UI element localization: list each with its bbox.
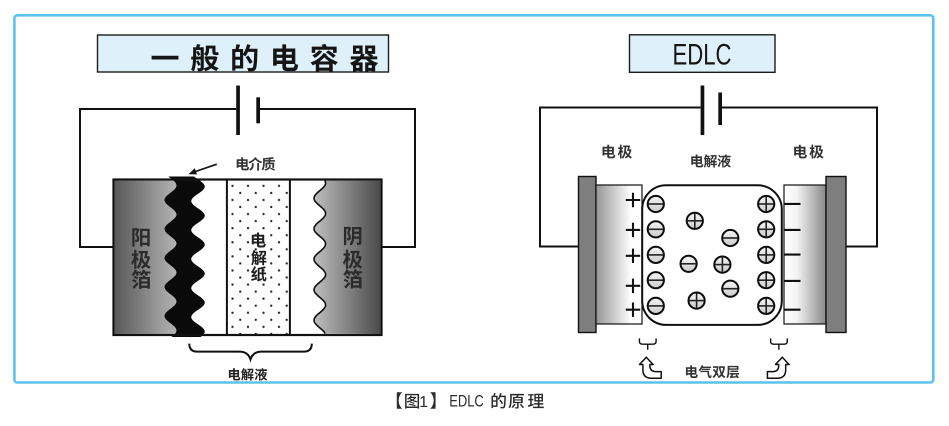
svg-text:EDLC: EDLC [673,39,732,72]
svg-text:1: 1 [419,394,428,411]
svg-text:EDLC: EDLC [449,392,484,411]
